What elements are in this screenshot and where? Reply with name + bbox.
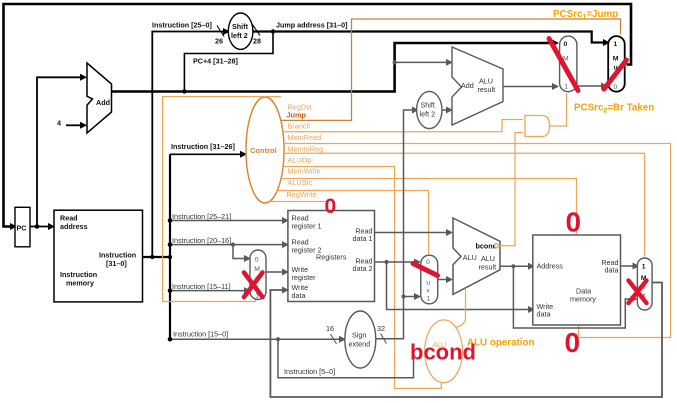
svg-text:ALU: ALU (479, 76, 493, 85)
svg-text:memory: memory (66, 279, 94, 288)
svg-text:0: 0 (564, 41, 568, 48)
svg-text:Registers: Registers (316, 252, 347, 261)
svg-text:MemtoReg: MemtoReg (288, 144, 324, 153)
svg-text:M: M (254, 266, 260, 273)
svg-text:Instruction [25–21]: Instruction [25–21] (172, 212, 231, 221)
svg-text:memory: memory (570, 294, 596, 303)
svg-text:Instruction [15–0]: Instruction [15–0] (173, 330, 228, 339)
svg-text:address: address (60, 222, 88, 231)
svg-text:Address: Address (537, 261, 564, 270)
svg-text:register 1: register 1 (292, 221, 322, 230)
svg-text:0: 0 (566, 207, 582, 238)
svg-text:RegWrite: RegWrite (287, 190, 317, 199)
svg-text:32: 32 (377, 324, 385, 333)
svg-text:28: 28 (253, 37, 261, 46)
svg-text:ALUSrc: ALUSrc (288, 178, 313, 187)
svg-text:bcond: bcond (410, 340, 476, 365)
svg-text:MemRead: MemRead (288, 133, 322, 142)
svg-text:PCSrc2=Br Taken: PCSrc2=Br Taken (574, 103, 654, 115)
svg-text:ALU: ALU (463, 253, 477, 262)
svg-text:Add: Add (461, 81, 474, 90)
svg-text:ALUOp: ALUOp (288, 156, 312, 165)
svg-text:bcond: bcond (476, 241, 498, 250)
svg-text:data: data (292, 291, 306, 300)
svg-text:data 1: data 1 (353, 234, 373, 243)
svg-text:Control: Control (250, 146, 277, 155)
svg-text:0: 0 (565, 327, 581, 358)
svg-text:0: 0 (426, 259, 430, 266)
svg-text:0: 0 (255, 257, 259, 264)
svg-text:left 2: left 2 (420, 110, 436, 119)
svg-text:PC: PC (17, 224, 27, 233)
svg-text:1: 1 (614, 41, 618, 48)
svg-text:M: M (613, 56, 619, 63)
svg-text:Instruction [15–11]: Instruction [15–11] (172, 282, 231, 291)
svg-text:16: 16 (326, 324, 334, 333)
svg-text:Branch: Branch (288, 122, 311, 131)
svg-text:PC+4 [31–28]: PC+4 [31–28] (193, 56, 238, 65)
svg-text:MemWrite: MemWrite (288, 167, 321, 176)
svg-text:[31–0]: [31–0] (106, 259, 127, 268)
svg-text:ALU operation: ALU operation (467, 337, 535, 348)
svg-text:Shift: Shift (421, 101, 435, 110)
svg-text:Instruction [31–26]: Instruction [31–26] (171, 142, 235, 151)
svg-text:Instruction [5–0]: Instruction [5–0] (284, 367, 335, 376)
svg-text:1: 1 (642, 264, 646, 271)
svg-text:Instruction [20–16]: Instruction [20–16] (172, 236, 231, 245)
svg-text:1: 1 (426, 296, 430, 303)
svg-text:Jump address [31–0]: Jump address [31–0] (276, 20, 348, 29)
svg-text:0: 0 (325, 195, 337, 218)
svg-text:data 2: data 2 (353, 264, 373, 273)
svg-text:x: x (426, 288, 430, 295)
svg-text:Instruction [25–0]: Instruction [25–0] (152, 20, 212, 29)
svg-text:Shift: Shift (232, 22, 249, 31)
svg-text:left 2: left 2 (231, 31, 248, 40)
svg-text:result: result (479, 262, 497, 271)
svg-text:Jump: Jump (287, 111, 307, 120)
svg-text:data: data (537, 309, 551, 318)
svg-text:0: 0 (614, 84, 618, 91)
svg-text:PCSrc1=Jump: PCSrc1=Jump (553, 9, 618, 21)
svg-text:extend: extend (349, 340, 371, 349)
svg-text:u: u (426, 280, 430, 287)
svg-text:1: 1 (564, 84, 568, 91)
svg-text:register: register (292, 273, 317, 282)
svg-text:result: result (478, 85, 496, 94)
svg-text:4: 4 (57, 118, 61, 127)
svg-text:26: 26 (215, 37, 223, 46)
svg-text:Sign: Sign (352, 331, 366, 340)
svg-text:data: data (605, 265, 619, 274)
svg-text:Add: Add (96, 98, 110, 107)
